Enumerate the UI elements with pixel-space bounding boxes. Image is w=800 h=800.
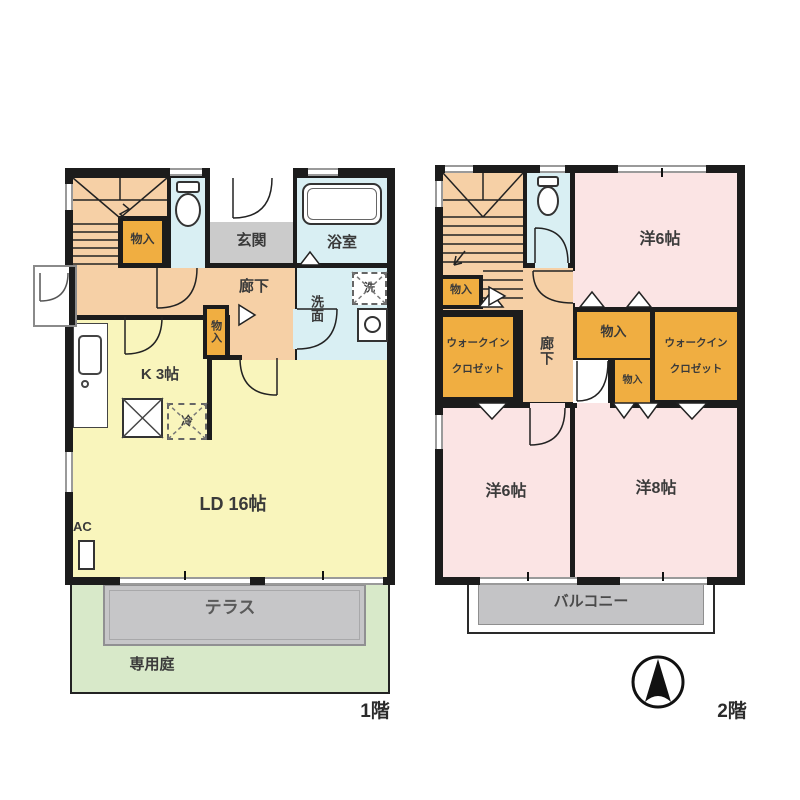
room-bedroom-top	[575, 173, 737, 307]
toilet-room-1f	[171, 178, 205, 268]
floor1-caption: 1階	[345, 701, 405, 723]
walk-in-closet-right	[655, 312, 737, 400]
window	[170, 168, 202, 176]
storage-hall-1f: 物入	[203, 305, 229, 359]
refrigerator-space: 冷	[167, 403, 207, 440]
washing-machine	[357, 308, 388, 342]
washroom-doorway-gap	[293, 309, 297, 349]
washer-pan: 洗	[352, 272, 387, 305]
toilet-room-2f	[527, 173, 570, 263]
bedroom-right-door-area	[573, 360, 608, 403]
room-bedroom-right	[575, 408, 737, 577]
storage-left-2f: 物入	[439, 275, 483, 309]
kitchen-faucet	[81, 380, 89, 388]
room-living-upper	[212, 360, 387, 440]
stove-counter	[122, 398, 163, 438]
sliding-window	[618, 165, 706, 173]
floorplan-1f: 物入 物入 冷 洗 玄関 浴室 廊下 洗面 K 3帖 LD 16帖 AC	[65, 168, 395, 585]
ac-unit-box	[78, 540, 95, 570]
window	[65, 452, 73, 492]
storage-left-label: 物入	[443, 284, 479, 297]
balcony: バルコニー	[467, 577, 715, 634]
page: { "plan_title": "2-story floor plan", "c…	[0, 0, 800, 800]
sliding-window	[620, 577, 707, 585]
kitchen-sink	[78, 335, 102, 375]
window	[540, 165, 565, 173]
room-living-lower	[73, 440, 387, 577]
window	[435, 415, 443, 449]
entrance-vestibule	[210, 178, 293, 222]
storage-small-2f	[615, 360, 650, 403]
storage-center-2f	[577, 312, 650, 358]
bedroom-right-doorway-gap	[577, 403, 610, 408]
sliding-window	[120, 577, 250, 585]
room-hallway-2f	[523, 268, 573, 402]
refrigerator-label: 冷	[169, 415, 205, 429]
sliding-window	[265, 577, 383, 585]
room-bedroom-left	[443, 408, 570, 577]
storage-under-stairs: 物入	[118, 216, 167, 268]
window	[435, 181, 443, 207]
bathtub	[302, 183, 382, 225]
window	[445, 165, 473, 173]
sliding-window	[480, 577, 577, 585]
exterior-storage-box	[33, 265, 77, 327]
storage-under-stairs-label: 物入	[123, 233, 162, 247]
front-door-gap	[210, 168, 293, 178]
storage-hall-1f-label: 物入	[209, 311, 222, 353]
room-hallway-1f	[73, 268, 295, 315]
floor2-caption: 2階	[702, 701, 762, 723]
floorplan-2f: 物入 洋6帖 廊下 ウォークイン クロゼット 物入 物入 ウォークイン クロゼッ…	[435, 165, 745, 585]
window	[308, 168, 338, 176]
washer-pan-label: 洗	[354, 282, 385, 295]
window	[65, 184, 73, 210]
terrace	[103, 584, 366, 646]
room-entrance	[210, 222, 293, 263]
bedroom-left-doorway-gap	[530, 403, 565, 408]
compass-north-icon	[626, 652, 690, 716]
hallway-column-1f	[230, 315, 295, 360]
walk-in-closet-left	[443, 317, 513, 397]
